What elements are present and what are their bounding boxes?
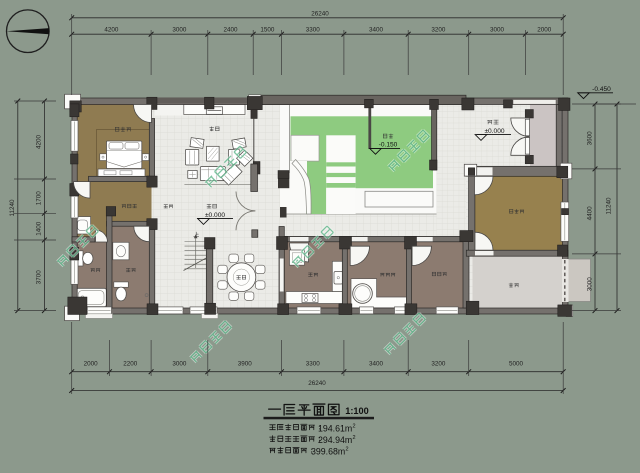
svg-text:26240: 26240 — [308, 380, 326, 387]
svg-text:1700: 1700 — [36, 191, 43, 206]
svg-text:1500: 1500 — [260, 27, 275, 34]
svg-text:3000: 3000 — [490, 27, 505, 34]
svg-text:4200: 4200 — [104, 27, 119, 34]
svg-text:-0.450: -0.450 — [592, 86, 611, 93]
svg-text:3300: 3300 — [306, 27, 321, 34]
svg-text:2000: 2000 — [84, 361, 99, 368]
svg-text:2: 2 — [353, 424, 356, 430]
svg-text:11240: 11240 — [9, 199, 16, 217]
svg-text:2400: 2400 — [223, 27, 238, 34]
svg-text:399.68m: 399.68m — [311, 447, 345, 457]
svg-text:1:100: 1:100 — [345, 406, 369, 416]
svg-text:3900: 3900 — [238, 361, 253, 368]
svg-text:294.94m: 294.94m — [318, 435, 352, 445]
svg-text:2000: 2000 — [537, 27, 552, 34]
svg-text:3300: 3300 — [306, 361, 321, 368]
svg-text:3000: 3000 — [587, 277, 594, 292]
svg-text:3600: 3600 — [587, 131, 594, 146]
svg-text:±0.000: ±0.000 — [205, 212, 225, 219]
svg-text:2200: 2200 — [123, 361, 138, 368]
svg-text:±0.000: ±0.000 — [484, 128, 504, 135]
svg-text:3200: 3200 — [431, 27, 446, 34]
svg-text:11240: 11240 — [606, 197, 613, 215]
svg-text:3700: 3700 — [36, 270, 43, 285]
svg-text:1400: 1400 — [36, 221, 43, 236]
svg-text:4400: 4400 — [587, 206, 594, 221]
svg-text:194.61m: 194.61m — [318, 424, 352, 434]
svg-text:26240: 26240 — [311, 11, 329, 18]
svg-text:2: 2 — [346, 447, 349, 453]
svg-text:2: 2 — [353, 435, 356, 441]
svg-text:4200: 4200 — [36, 135, 43, 150]
svg-text:3400: 3400 — [369, 27, 384, 34]
svg-text:-0.150: -0.150 — [379, 142, 398, 149]
svg-text:3400: 3400 — [369, 361, 384, 368]
svg-text:3000: 3000 — [172, 27, 187, 34]
svg-text:5000: 5000 — [509, 361, 524, 368]
svg-text:3200: 3200 — [431, 361, 446, 368]
svg-text:3000: 3000 — [172, 361, 187, 368]
